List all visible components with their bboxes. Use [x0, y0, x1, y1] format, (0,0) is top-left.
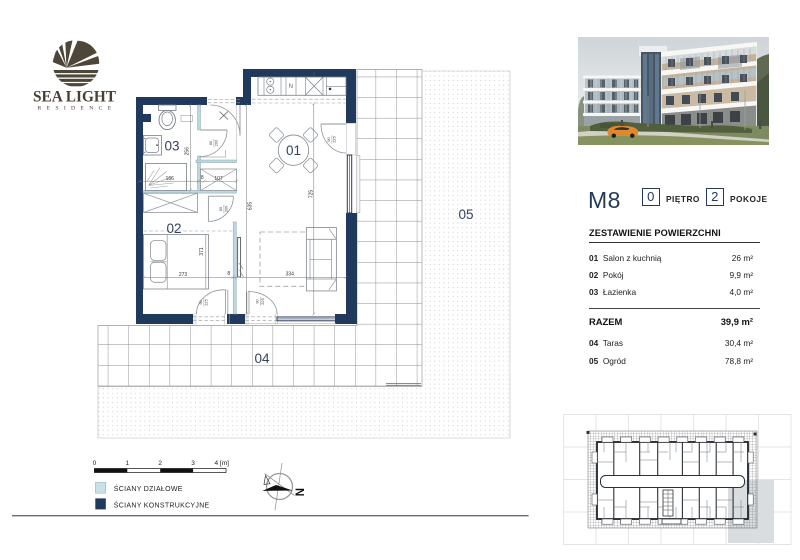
- svg-text:107: 107: [214, 176, 223, 182]
- svg-text:05: 05: [458, 207, 473, 222]
- svg-text:3: 3: [191, 460, 195, 467]
- svg-text:8: 8: [227, 271, 230, 277]
- svg-text:2: 2: [158, 460, 162, 467]
- svg-text:90: 90: [255, 299, 260, 304]
- svg-text:273: 273: [179, 272, 188, 278]
- svg-text:RESIDENCE: RESIDENCE: [38, 105, 117, 111]
- svg-text:ŚCIANY DZIAŁOWE: ŚCIANY DZIAŁOWE: [114, 484, 183, 493]
- svg-text:80: 80: [208, 140, 213, 145]
- svg-text:200: 200: [223, 205, 228, 212]
- svg-text:N: N: [293, 488, 305, 496]
- svg-text:SEA LIGHT: SEA LIGHT: [33, 89, 116, 106]
- svg-text:90: 90: [198, 300, 203, 305]
- svg-text:635: 635: [248, 202, 254, 211]
- svg-text:1: 1: [125, 460, 129, 467]
- svg-text:80: 80: [218, 206, 223, 211]
- svg-text:225: 225: [331, 136, 336, 143]
- svg-text:N: N: [289, 84, 293, 90]
- svg-text:03: 03: [164, 139, 179, 154]
- svg-text:01: 01: [286, 143, 301, 158]
- svg-text:166: 166: [166, 176, 175, 182]
- svg-text:4 [m]: 4 [m]: [215, 460, 230, 467]
- svg-text:200: 200: [213, 139, 218, 146]
- svg-text:371: 371: [199, 247, 205, 256]
- svg-text:90: 90: [326, 137, 331, 142]
- svg-text:8: 8: [201, 175, 204, 181]
- svg-text:225: 225: [203, 299, 208, 306]
- svg-text:725: 725: [309, 190, 315, 199]
- svg-text:ŚCIANY KONSTRUKCYJNE: ŚCIANY KONSTRUKCYJNE: [114, 500, 210, 509]
- svg-text:225: 225: [260, 298, 265, 305]
- svg-text:0: 0: [93, 460, 97, 467]
- svg-text:02: 02: [166, 221, 181, 236]
- svg-text:256: 256: [185, 147, 191, 156]
- svg-text:04: 04: [254, 351, 270, 366]
- svg-text:334: 334: [286, 272, 295, 278]
